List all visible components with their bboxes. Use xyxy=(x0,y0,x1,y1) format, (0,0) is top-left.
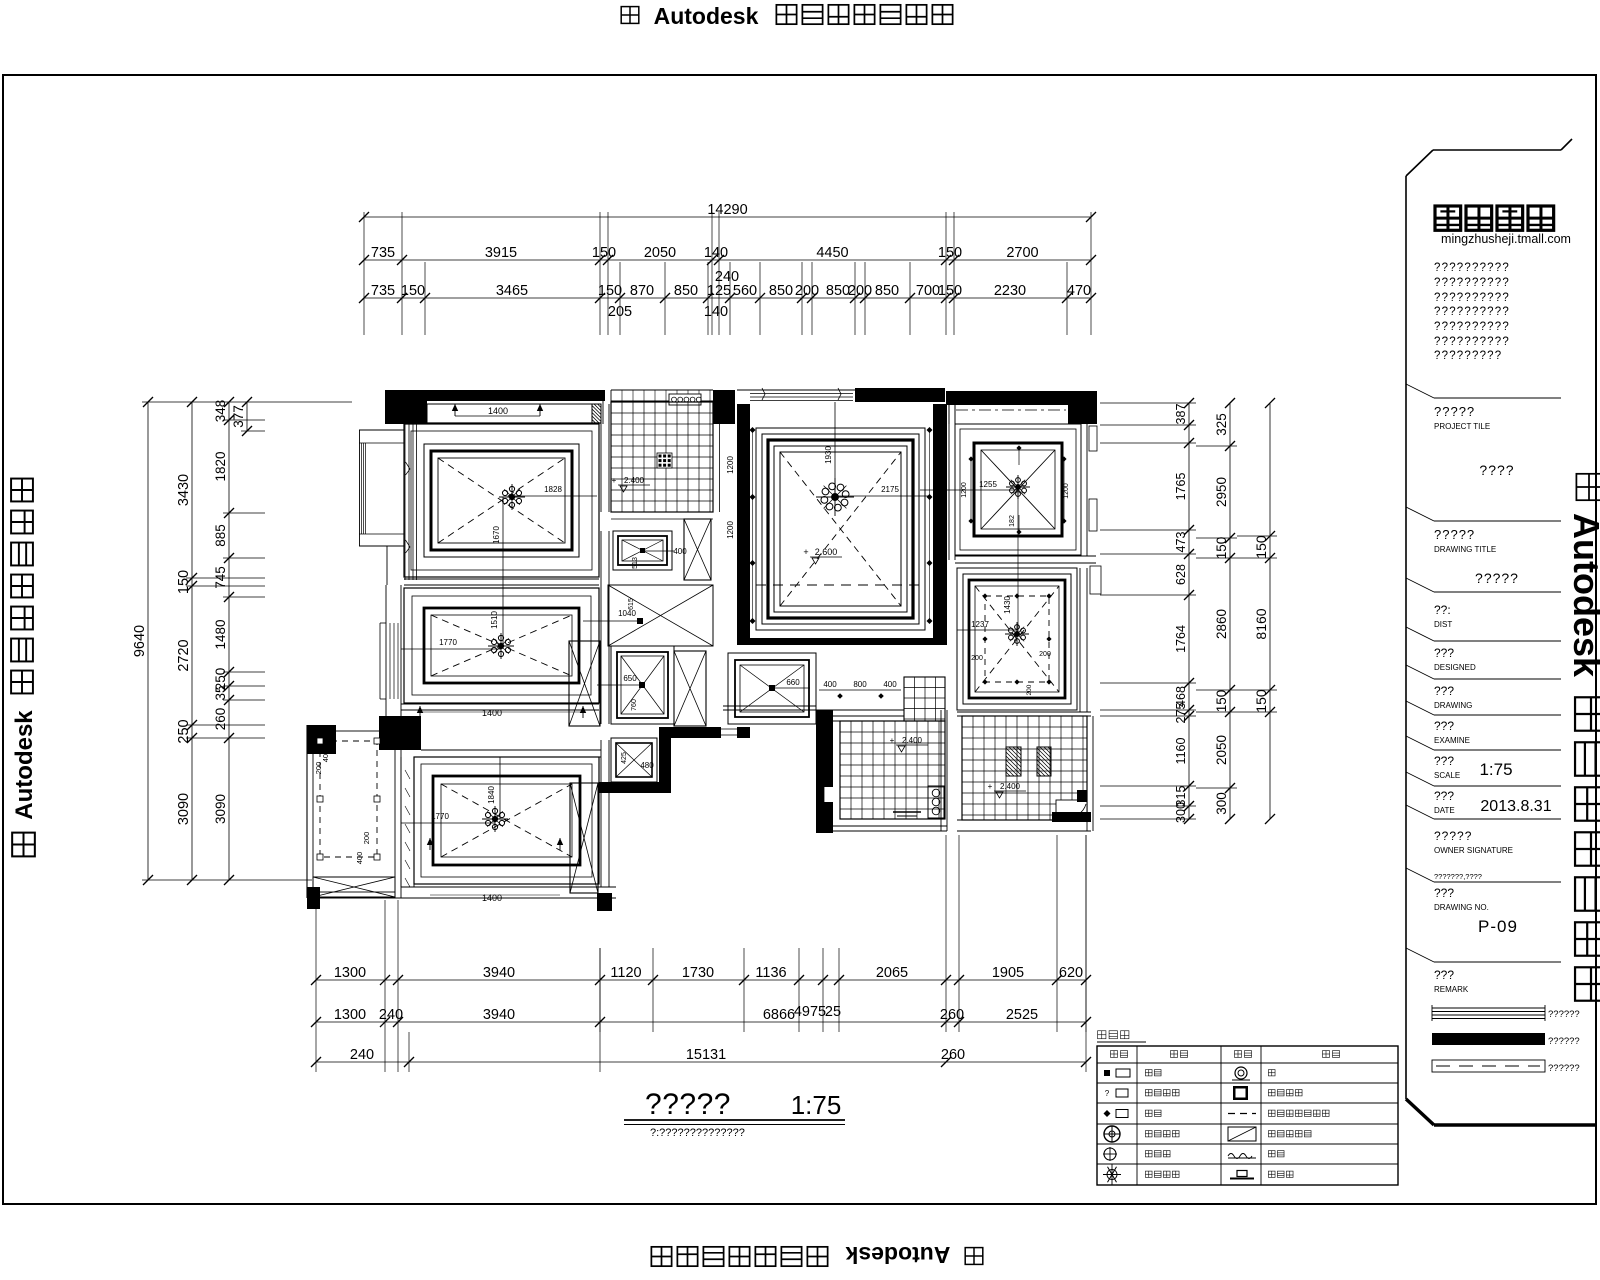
svg-text:???????,????: ???????,???? xyxy=(1434,872,1482,881)
svg-text:150: 150 xyxy=(938,245,962,261)
svg-text:+: + xyxy=(803,547,808,557)
svg-text:1:75: 1:75 xyxy=(1479,760,1512,779)
svg-text:?????: ????? xyxy=(1434,829,1472,843)
svg-text:140: 140 xyxy=(704,245,728,261)
svg-text:1300: 1300 xyxy=(334,1007,366,1023)
svg-text:3940: 3940 xyxy=(483,965,515,981)
svg-text:513: 513 xyxy=(632,557,639,569)
svg-text:150: 150 xyxy=(176,570,192,594)
svg-text:260: 260 xyxy=(213,708,228,731)
svg-text:Autodesk: Autodesk xyxy=(654,3,759,29)
svg-text:1840: 1840 xyxy=(487,786,496,804)
svg-text:???: ??? xyxy=(1434,886,1454,900)
svg-text:1237: 1237 xyxy=(971,620,989,629)
svg-text:885: 885 xyxy=(213,524,228,547)
svg-text:850: 850 xyxy=(826,283,850,299)
svg-text:3090: 3090 xyxy=(213,794,228,824)
svg-text:1400: 1400 xyxy=(488,406,508,416)
svg-text:??????????: ?????????? xyxy=(1434,262,1510,274)
svg-text:2720: 2720 xyxy=(176,639,192,671)
svg-text:150: 150 xyxy=(1253,689,1269,713)
svg-text:1430: 1430 xyxy=(1003,596,1012,614)
svg-text:DESIGNED: DESIGNED xyxy=(1434,663,1476,672)
svg-text:1200: 1200 xyxy=(726,456,735,474)
svg-text:2.400: 2.400 xyxy=(1000,782,1021,791)
svg-text:1300: 1300 xyxy=(334,965,366,981)
svg-text:470: 470 xyxy=(1067,283,1091,299)
svg-text:?????: ????? xyxy=(645,1088,731,1121)
svg-text:150: 150 xyxy=(598,283,622,299)
svg-text:2.600: 2.600 xyxy=(815,547,838,557)
svg-text:2050: 2050 xyxy=(644,245,676,261)
svg-text:??????????: ?????????? xyxy=(1434,277,1510,289)
svg-text:2.400: 2.400 xyxy=(902,736,923,745)
svg-text:SCALE: SCALE xyxy=(1434,771,1460,780)
svg-text:EXAMINE: EXAMINE xyxy=(1434,736,1470,745)
svg-text:850: 850 xyxy=(875,283,899,299)
svg-text:1136: 1136 xyxy=(755,965,786,981)
svg-text:1255: 1255 xyxy=(979,480,997,489)
svg-text:1200: 1200 xyxy=(961,482,968,498)
svg-text:1160: 1160 xyxy=(1174,738,1188,765)
svg-text:620: 620 xyxy=(1059,965,1083,981)
svg-text:400: 400 xyxy=(823,680,837,689)
svg-text:3430: 3430 xyxy=(176,474,192,506)
svg-text:1200: 1200 xyxy=(726,521,735,539)
svg-text:745: 745 xyxy=(213,566,228,589)
svg-text:850: 850 xyxy=(674,283,698,299)
svg-text:3915: 3915 xyxy=(485,245,517,261)
svg-text:425: 425 xyxy=(621,752,628,764)
svg-text:??:: ??: xyxy=(1434,603,1451,617)
svg-text:14290: 14290 xyxy=(707,202,747,218)
svg-text:?????: ????? xyxy=(1475,570,1519,586)
svg-text:1400: 1400 xyxy=(482,708,502,718)
svg-text:1120: 1120 xyxy=(610,965,641,981)
svg-text:150: 150 xyxy=(1214,537,1229,560)
svg-text:2230: 2230 xyxy=(994,283,1026,299)
svg-text:25: 25 xyxy=(825,1004,841,1020)
svg-text:+: + xyxy=(612,476,617,485)
svg-text:260: 260 xyxy=(941,1047,965,1063)
svg-text:400: 400 xyxy=(355,852,364,865)
svg-text:1770: 1770 xyxy=(431,812,449,821)
svg-text:9640: 9640 xyxy=(132,625,148,657)
svg-text:+: + xyxy=(988,782,993,791)
svg-text:DRAWING: DRAWING xyxy=(1434,701,1472,710)
svg-text:660: 660 xyxy=(786,678,800,687)
svg-text:200: 200 xyxy=(971,655,983,662)
svg-text:240: 240 xyxy=(379,1007,403,1023)
svg-text:735: 735 xyxy=(371,283,395,299)
svg-text:560: 560 xyxy=(733,283,757,299)
svg-text:1770: 1770 xyxy=(439,638,457,647)
svg-text:??????????: ?????????? xyxy=(1434,336,1510,348)
svg-text:2050: 2050 xyxy=(1214,735,1229,765)
svg-text:???: ??? xyxy=(1434,754,1454,768)
svg-text:???: ??? xyxy=(1434,684,1454,698)
svg-text:??????: ?????? xyxy=(1548,1009,1580,1020)
svg-text:1765: 1765 xyxy=(1174,473,1188,501)
svg-text:300: 300 xyxy=(1214,792,1229,815)
svg-text:8160: 8160 xyxy=(1253,608,1269,639)
svg-text:2065: 2065 xyxy=(876,965,908,981)
svg-text:700: 700 xyxy=(916,283,940,299)
svg-text:2.400: 2.400 xyxy=(624,476,645,485)
svg-text:377: 377 xyxy=(231,405,246,428)
svg-text:6866: 6866 xyxy=(763,1007,795,1023)
svg-text:250: 250 xyxy=(176,719,192,743)
svg-text:150: 150 xyxy=(592,245,616,261)
svg-text:OWNER SIGNATURE: OWNER SIGNATURE xyxy=(1434,846,1513,855)
svg-text:1510: 1510 xyxy=(490,611,499,629)
svg-text:??????: ?????? xyxy=(1548,1063,1580,1074)
svg-text:Autodesk: Autodesk xyxy=(11,710,38,820)
svg-text:240: 240 xyxy=(715,269,739,285)
svg-text:DRAWING NO.: DRAWING NO. xyxy=(1434,903,1489,912)
svg-text:387: 387 xyxy=(1174,404,1188,425)
svg-text:?????: ????? xyxy=(1434,404,1475,419)
svg-text:?????????: ????????? xyxy=(1434,350,1502,362)
svg-text:182: 182 xyxy=(1009,515,1016,527)
svg-text:DIST: DIST xyxy=(1434,620,1452,629)
svg-text:200: 200 xyxy=(362,832,371,845)
svg-text:1200: 1200 xyxy=(937,521,946,539)
svg-text:200: 200 xyxy=(314,762,323,775)
svg-text:1820: 1820 xyxy=(213,451,228,481)
svg-text:1480: 1480 xyxy=(213,619,228,649)
svg-text:1200: 1200 xyxy=(937,456,946,474)
svg-text:348: 348 xyxy=(213,400,228,423)
svg-text:?????: ????? xyxy=(1434,527,1475,542)
svg-text:???: ??? xyxy=(1434,646,1454,660)
svg-text:mingzhusheji.tmall.com: mingzhusheji.tmall.com xyxy=(1441,232,1571,246)
svg-text:1764: 1764 xyxy=(1174,625,1188,653)
svg-text:260: 260 xyxy=(940,1007,964,1023)
svg-text:650: 650 xyxy=(623,674,637,683)
svg-text:150: 150 xyxy=(1214,690,1229,713)
svg-text:200: 200 xyxy=(1039,651,1051,658)
svg-text:615: 615 xyxy=(628,598,635,610)
svg-text:240: 240 xyxy=(350,1047,374,1063)
svg-text:???: ??? xyxy=(1434,789,1454,803)
svg-text:150: 150 xyxy=(1253,535,1269,559)
svg-text:760: 760 xyxy=(631,699,638,711)
svg-text:3465: 3465 xyxy=(496,283,528,299)
svg-text:2700: 2700 xyxy=(1006,245,1038,261)
svg-text:1:75: 1:75 xyxy=(791,1090,842,1120)
svg-text:3940: 3940 xyxy=(483,1007,515,1023)
svg-text:???: ??? xyxy=(1434,968,1454,982)
svg-text:1670: 1670 xyxy=(492,526,501,544)
svg-text:1828: 1828 xyxy=(544,485,562,494)
svg-text:2525: 2525 xyxy=(1006,1007,1038,1023)
svg-text:2013.8.31: 2013.8.31 xyxy=(1480,798,1551,815)
svg-text:200: 200 xyxy=(1026,684,1033,695)
svg-text:4450: 4450 xyxy=(816,245,848,261)
svg-text:????: ???? xyxy=(1479,462,1514,478)
svg-text:?:??????????????: ?:?????????????? xyxy=(650,1127,745,1139)
svg-text:+: + xyxy=(890,736,895,745)
svg-text:35: 35 xyxy=(213,685,228,700)
svg-text:1905: 1905 xyxy=(992,965,1024,981)
svg-text:15131: 15131 xyxy=(686,1047,726,1063)
svg-text:??????????: ?????????? xyxy=(1434,292,1510,304)
svg-text:473: 473 xyxy=(1174,532,1188,553)
svg-text:2175: 2175 xyxy=(881,485,899,494)
svg-text:DATE: DATE xyxy=(1434,806,1455,815)
svg-text:??????????: ?????????? xyxy=(1434,321,1510,333)
svg-text:PROJECT TILE: PROJECT TILE xyxy=(1434,422,1490,431)
svg-text:400: 400 xyxy=(883,680,897,689)
svg-text:Autodesk: Autodesk xyxy=(845,1242,950,1268)
svg-text:275: 275 xyxy=(1174,703,1188,724)
svg-text:REMARK: REMARK xyxy=(1434,985,1469,994)
svg-text:200: 200 xyxy=(795,283,819,299)
svg-text:140: 140 xyxy=(704,304,728,320)
svg-text:1930: 1930 xyxy=(824,446,833,464)
svg-text:400: 400 xyxy=(321,750,330,763)
svg-text:150: 150 xyxy=(401,283,425,299)
svg-text:Autodesk: Autodesk xyxy=(1566,513,1600,678)
svg-text:480: 480 xyxy=(640,761,654,770)
svg-text:300: 300 xyxy=(1174,802,1188,823)
svg-text:3090: 3090 xyxy=(176,793,192,825)
svg-text:??????????: ?????????? xyxy=(1434,306,1510,318)
svg-text:200: 200 xyxy=(848,283,872,299)
svg-text:800: 800 xyxy=(853,680,867,689)
svg-text:400: 400 xyxy=(673,547,687,556)
svg-text:150: 150 xyxy=(938,283,962,299)
svg-text:??????: ?????? xyxy=(1548,1036,1580,1047)
svg-text:2950: 2950 xyxy=(1214,477,1229,507)
svg-text:735: 735 xyxy=(371,245,395,261)
svg-text:P-09: P-09 xyxy=(1478,917,1518,936)
svg-text:DRAWING TITLE: DRAWING TITLE xyxy=(1434,545,1496,554)
svg-text:628: 628 xyxy=(1174,564,1188,585)
svg-text:870: 870 xyxy=(630,283,654,299)
svg-text:850: 850 xyxy=(769,283,793,299)
svg-text:???: ??? xyxy=(1434,719,1454,733)
svg-text:2860: 2860 xyxy=(1214,609,1229,639)
svg-text:325: 325 xyxy=(1214,413,1229,436)
svg-text:1730: 1730 xyxy=(682,965,714,981)
svg-text:?: ? xyxy=(1105,1089,1110,1098)
